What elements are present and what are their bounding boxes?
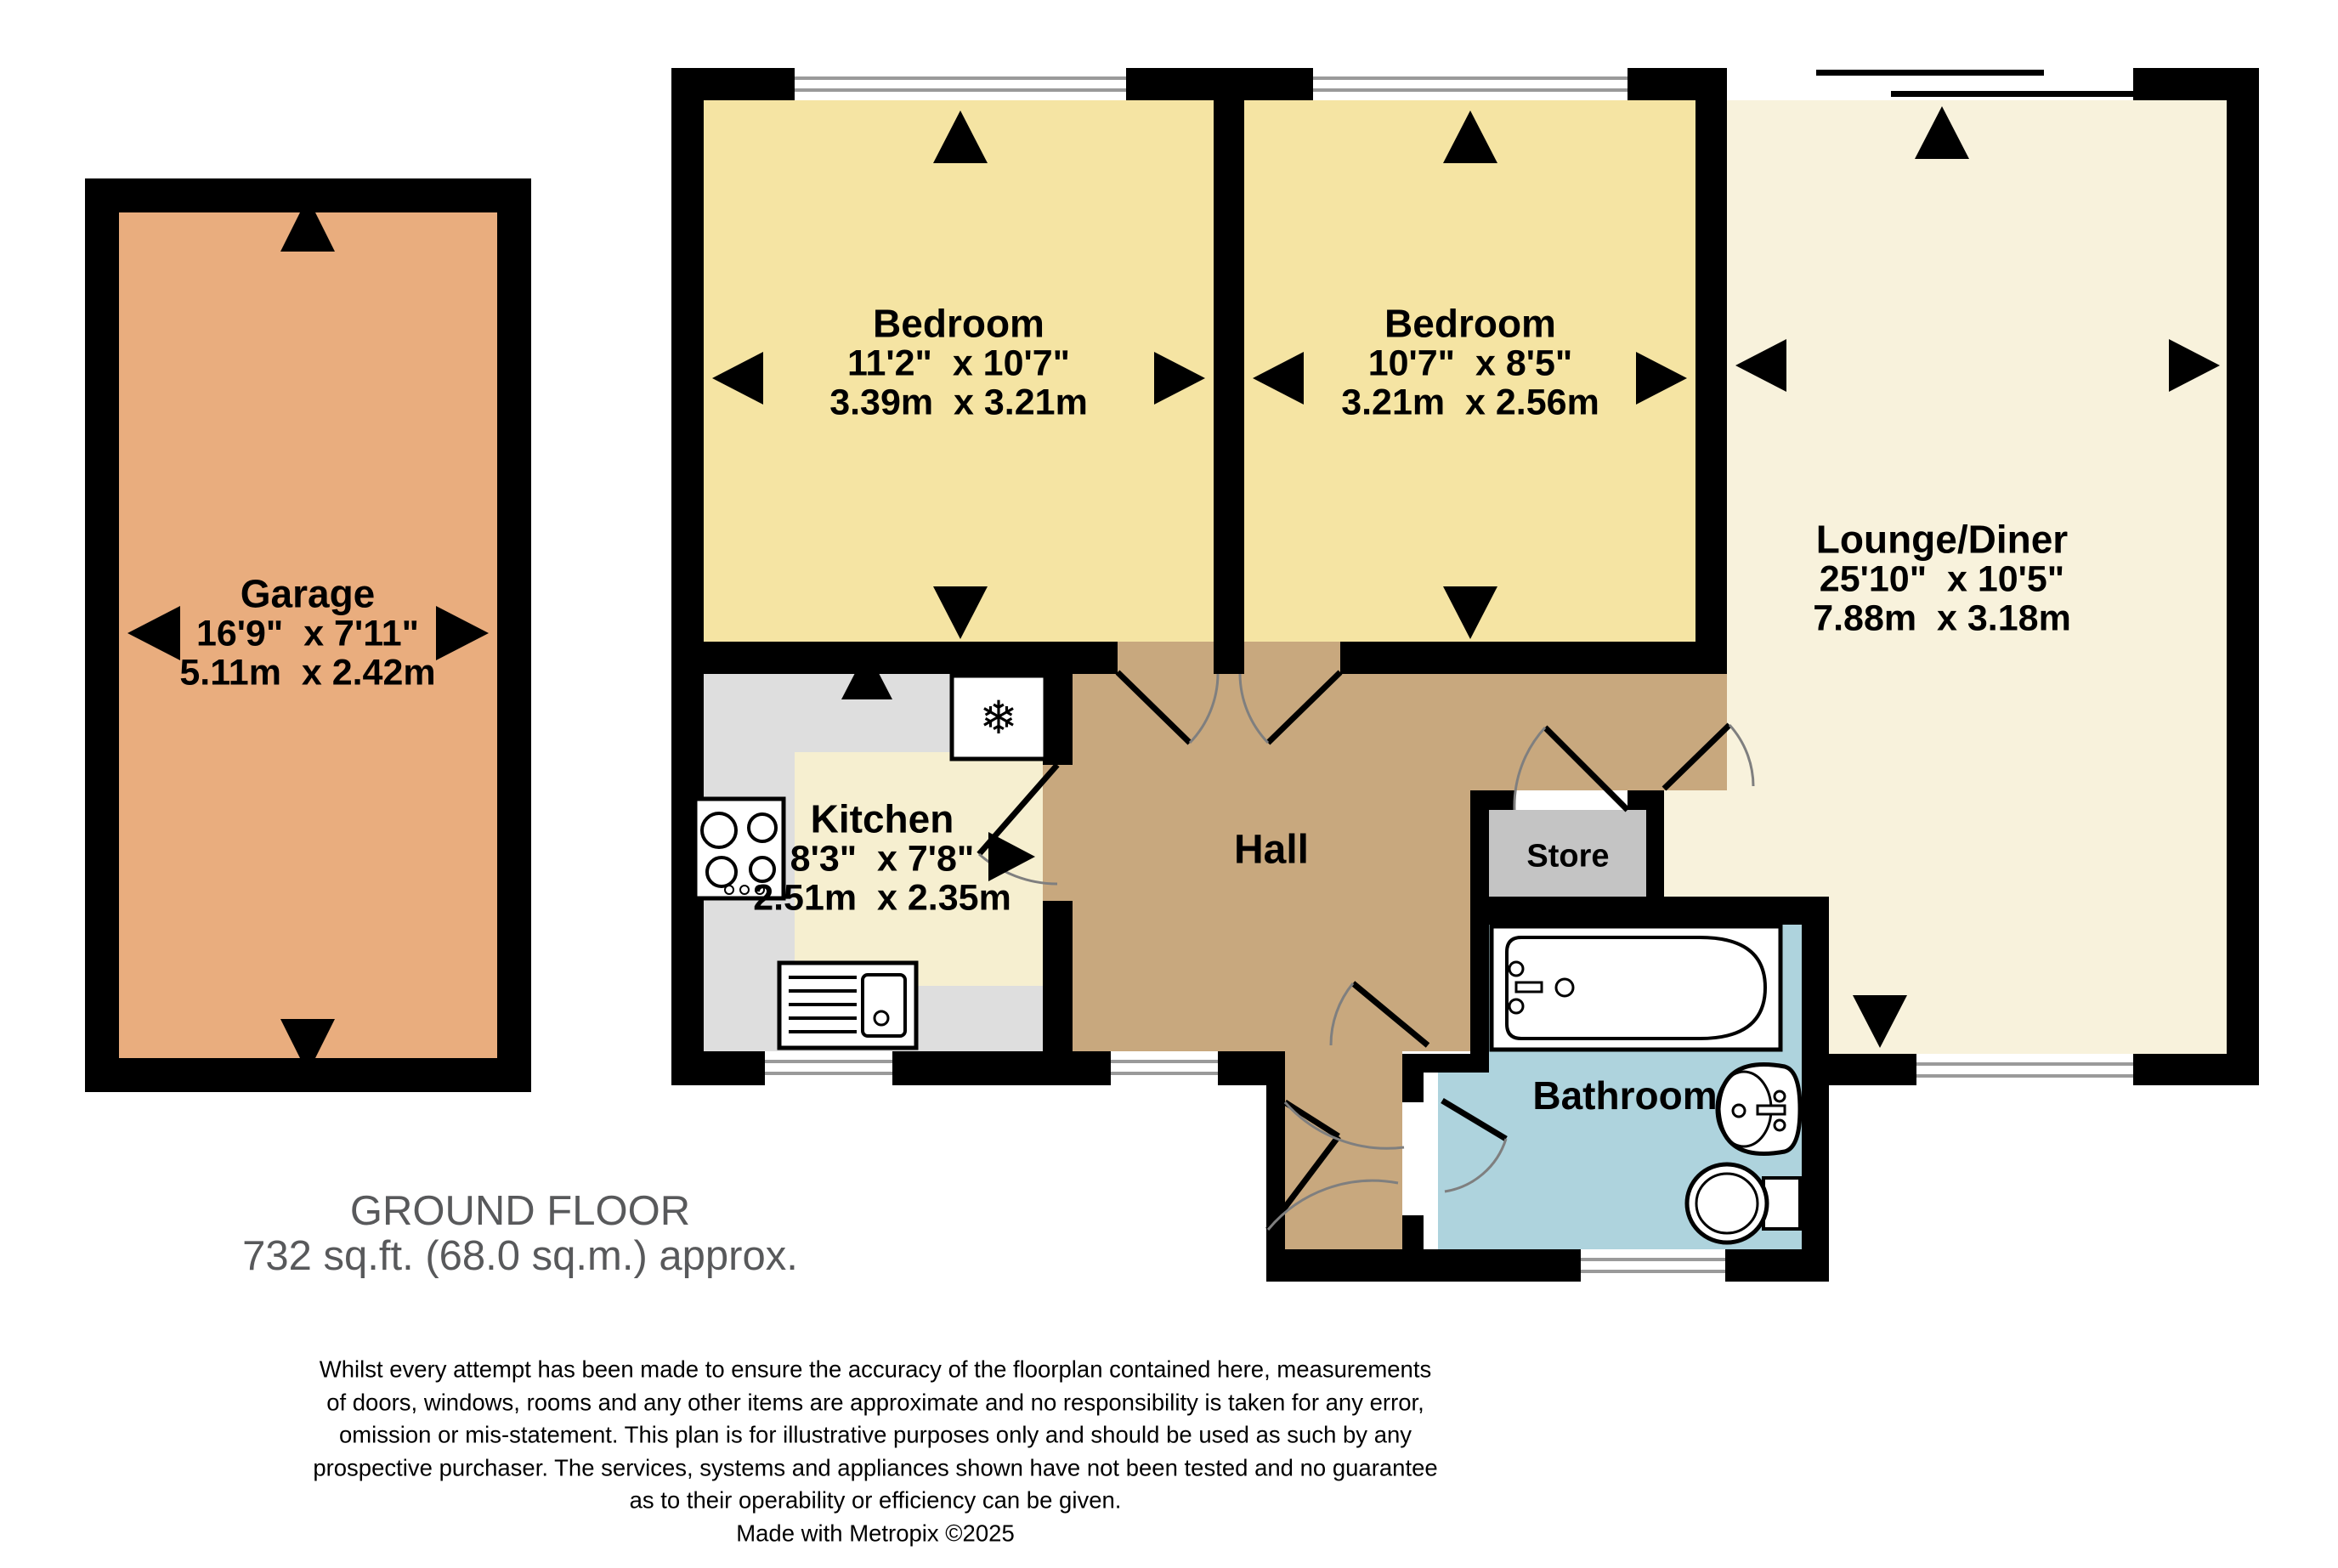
floorplan-drawing: ❄ (0, 0, 2338, 1568)
floor-summary: GROUND FLOOR 732 sq.ft. (68.0 sq.m.) app… (242, 1189, 798, 1279)
kitchen-sink-icon (779, 963, 916, 1048)
patio-door-line (1891, 91, 2139, 97)
disclaimer-line: of doors, windows, rooms and any other i… (313, 1386, 1437, 1419)
floor-area: 732 sq.ft. (68.0 sq.m.) approx. (242, 1234, 798, 1279)
metropix-credit: Made with Metropix ©2025 (313, 1517, 1437, 1550)
floorplan-canvas: ❄ (0, 0, 2338, 1568)
bedroom1-window (795, 68, 1126, 100)
basin-icon (1717, 1064, 1800, 1153)
disclaimer: Whilst every attempt has been made to en… (313, 1354, 1437, 1550)
snowflake-icon: ❄ (979, 691, 1017, 744)
room-dim-metric: 3.21m x 2.56m (1341, 383, 1599, 422)
room-name: Bedroom (829, 304, 1088, 344)
kitchen-door-opening (1043, 765, 1073, 901)
room-dim-metric: 3.39m x 3.21m (829, 383, 1088, 422)
patio-door-line (1816, 70, 2044, 76)
room-dim-imperial: 16'9" x 7'11" (179, 614, 435, 654)
store-label: Store (1526, 839, 1609, 875)
room-dim-metric: 7.88m x 3.18m (1813, 599, 2071, 638)
room-dim-metric: 2.51m x 2.35m (753, 879, 1011, 918)
bedroom1-label: Bedroom 11'2" x 10'7" 3.39m x 3.21m (829, 304, 1088, 422)
bathtub-icon (1492, 926, 1780, 1050)
room-dim-imperial: 8'3" x 7'8" (753, 840, 1011, 879)
garage-label: Garage 16'9" x 7'11" 5.11m x 2.42m (179, 575, 435, 693)
room-name: Lounge/Diner (1813, 520, 2071, 560)
hall-window (1111, 1051, 1218, 1085)
kitchen-label: Kitchen 8'3" x 7'8" 2.51m x 2.35m (753, 800, 1011, 918)
lounge-window (1916, 1054, 2133, 1085)
kitchen-window (765, 1051, 892, 1085)
room-name: Bedroom (1341, 304, 1599, 344)
bathroom-label: Bathroom (1532, 1073, 1717, 1118)
room-name: Kitchen (753, 800, 1011, 840)
room-dim-imperial: 11'2" x 10'7" (829, 344, 1088, 383)
floor-title: GROUND FLOOR (242, 1189, 798, 1234)
disclaimer-line: as to their operability or efficiency ca… (313, 1485, 1437, 1518)
room-dim-metric: 5.11m x 2.42m (179, 654, 435, 693)
disclaimer-line: prospective purchaser. The services, sys… (313, 1452, 1437, 1485)
hall-label: Hall (1234, 827, 1309, 874)
room-name: Garage (179, 575, 435, 614)
bathroom-window (1581, 1249, 1725, 1282)
room-dim-imperial: 10'7" x 8'5" (1341, 344, 1599, 383)
bedroom1-door-opening (1118, 642, 1214, 674)
disclaimer-line: Whilst every attempt has been made to en… (313, 1354, 1437, 1387)
bedroom2-window (1313, 68, 1628, 100)
bedroom2-door-opening (1244, 642, 1340, 674)
disclaimer-line: omission or mis-statement. This plan is … (313, 1419, 1437, 1452)
bedroom2-label: Bedroom 10'7" x 8'5" 3.21m x 2.56m (1341, 304, 1599, 422)
lounge-label: Lounge/Diner 25'10" x 10'5" 7.88m x 3.18… (1813, 520, 2071, 638)
vestibule-floor (1285, 1051, 1402, 1249)
room-dim-imperial: 25'10" x 10'5" (1813, 560, 2071, 599)
